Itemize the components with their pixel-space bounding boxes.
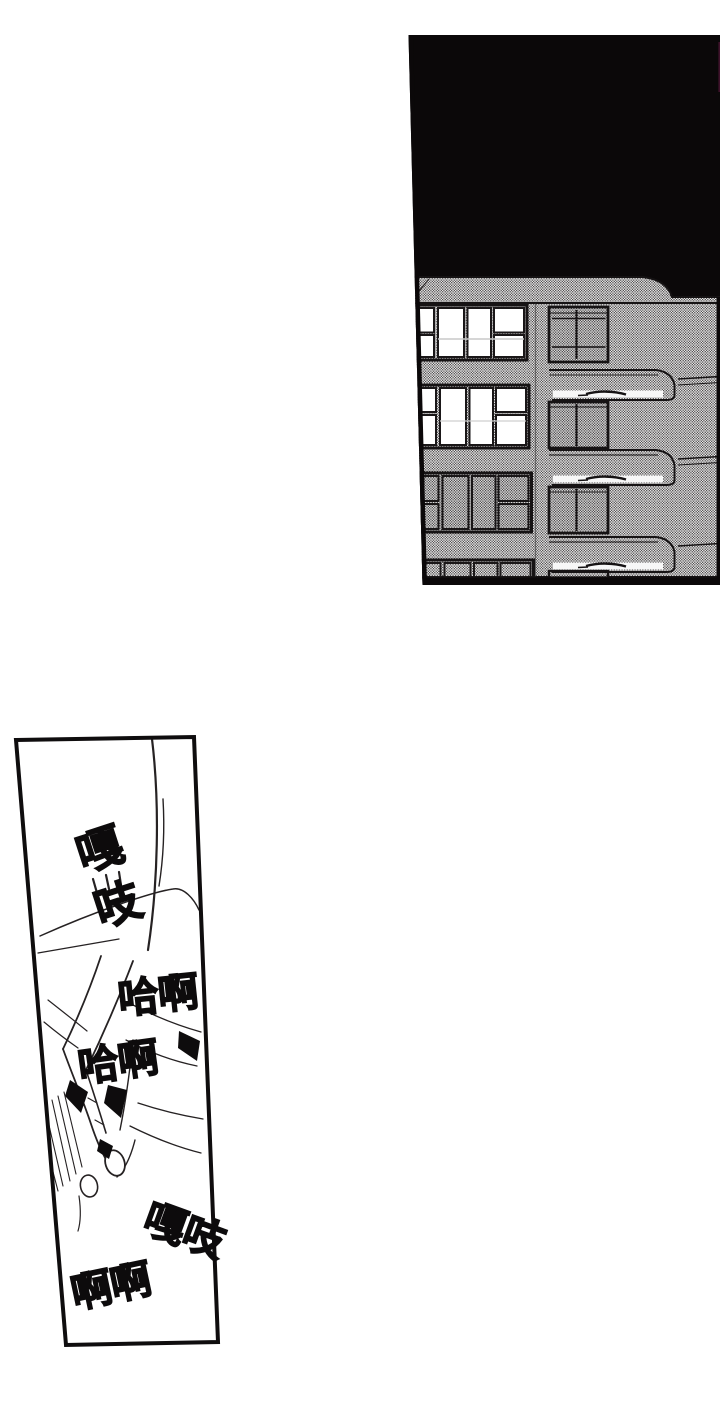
balcony-window-3 <box>549 487 608 533</box>
sfx-gasp-1: 哈啊 <box>116 971 200 1020</box>
window-row-lit-2 <box>418 385 530 448</box>
manga-page: 嘎吱 哈啊 哈啊 嘎吱 啊啊 <box>0 0 720 1411</box>
balcony-window-1 <box>549 307 608 362</box>
sfx-gasp-2: 哈啊 <box>76 1037 161 1089</box>
window-row-dark-3 <box>420 473 532 532</box>
window-row-dark-4 <box>422 560 534 578</box>
balcony-window-2 <box>549 402 608 448</box>
window-row-lit-1 <box>416 305 528 360</box>
building-night-panel <box>408 35 720 585</box>
